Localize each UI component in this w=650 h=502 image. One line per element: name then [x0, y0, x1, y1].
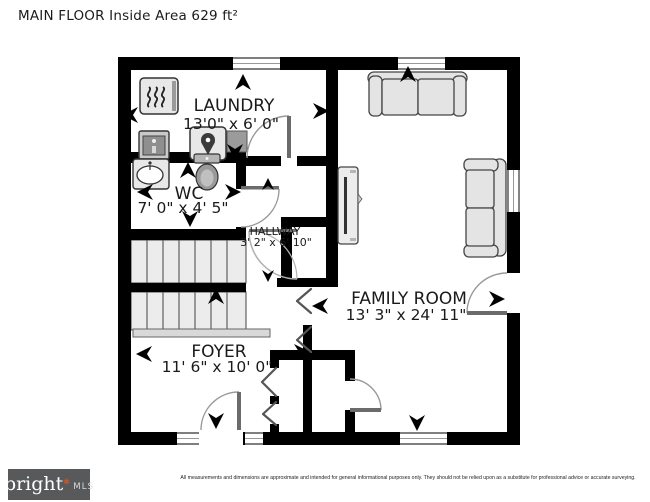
room-dims-laundry: 13'0" x 6' 0" [183, 115, 279, 133]
page-title: MAIN FLOOR Inside Area 629 ft² [18, 8, 238, 24]
door-front [201, 392, 241, 430]
loveseat-icon [368, 72, 467, 116]
arrow-down-icon [262, 270, 274, 282]
logo-wordmark: bright [4, 475, 63, 494]
sink-icon [133, 159, 169, 189]
floor-plan-page: MAIN FLOOR Inside Area 629 ft² [0, 0, 650, 502]
arrow-up-icon [180, 162, 196, 178]
logo-asterisk-icon [63, 470, 70, 489]
arrow-left-icon [312, 298, 328, 314]
arrow-down-icon [409, 415, 425, 431]
window-family-right [507, 170, 520, 212]
stair-landing [133, 329, 270, 337]
floor-plan-drawing: LAUNDRY 13'0" x 6' 0" WC 7' 0" x 4' 5" H… [0, 0, 650, 502]
sofa-icon [464, 159, 506, 257]
room-label-laundry: LAUNDRY [194, 96, 275, 116]
logo-suffix: MLS [73, 482, 94, 492]
washer-icon [139, 131, 169, 159]
dryer-icon [140, 78, 178, 114]
accordion-door-passage-top [297, 289, 311, 313]
arrow-left-icon [136, 346, 152, 362]
accordion-door-closet-lower [263, 402, 276, 425]
window-laundry [233, 57, 280, 70]
tv-unit-icon [338, 167, 362, 244]
arrow-down-icon [208, 413, 224, 429]
room-dims-hallway: 3' 2" x 6' 10" [240, 236, 312, 249]
brightmls-logo: brightMLS [8, 469, 90, 500]
room-dims-family: 13' 3" x 24' 11" [346, 306, 467, 324]
window-family-top [398, 57, 445, 70]
footer-disclaimer: All measurements and dimensions are appr… [168, 475, 648, 481]
window-foyer-left [177, 432, 200, 445]
window-family-bottom [400, 432, 447, 445]
room-dims-wc: 7' 0" x 4' 5" [137, 199, 228, 217]
door-wc [241, 186, 279, 227]
room-dims-foyer: 11' 6" x 10' 0" [162, 358, 273, 376]
arrow-right-icon [489, 291, 505, 307]
door-family-right [467, 273, 507, 315]
window-foyer-right [245, 432, 263, 445]
arrow-up-icon [235, 74, 251, 90]
